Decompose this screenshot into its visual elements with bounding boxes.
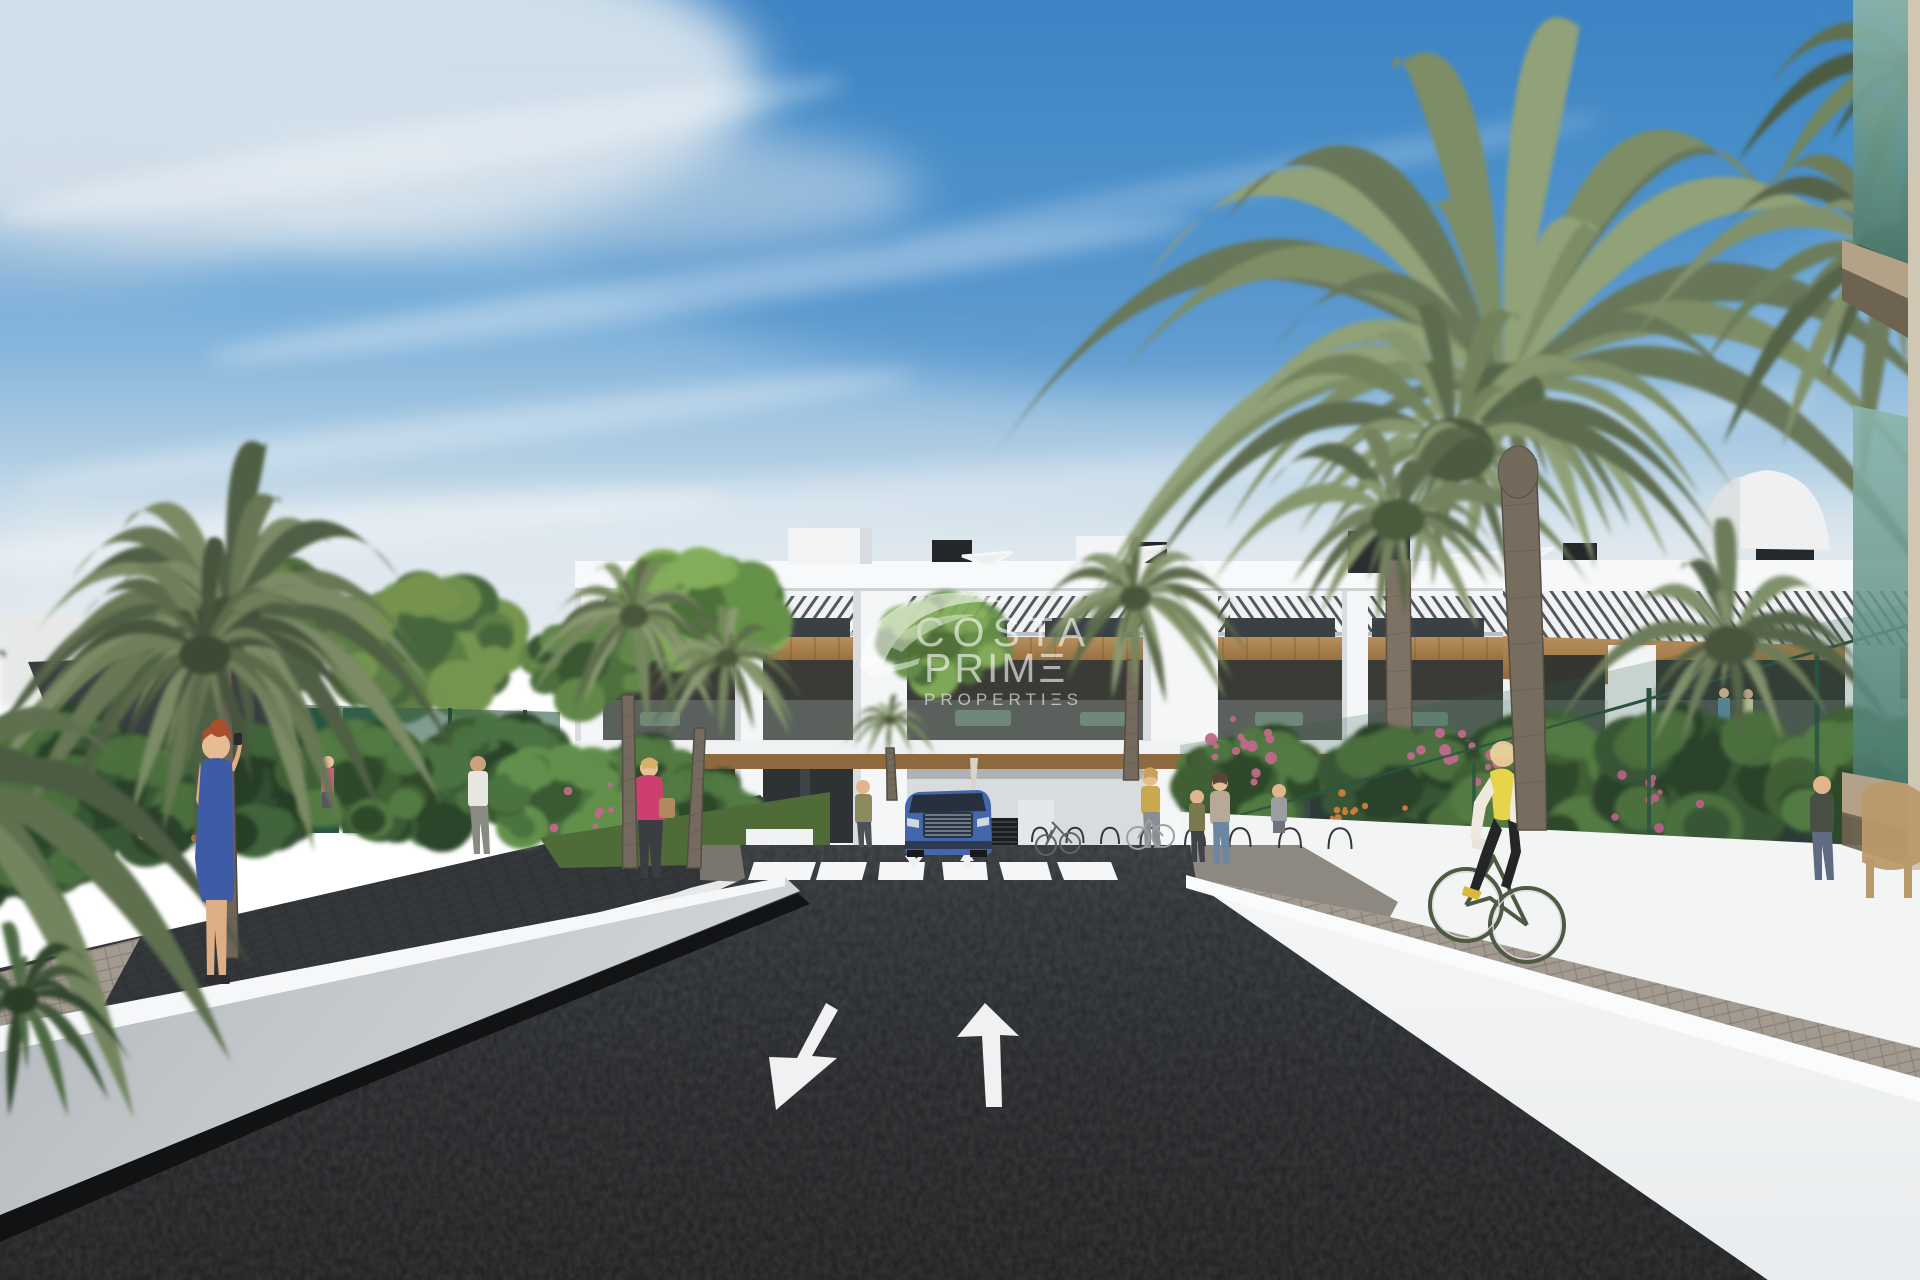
svg-text:PROPERTIΞS: PROPERTIΞS [924, 690, 1083, 709]
svg-text:PRIMΞ: PRIMΞ [924, 645, 1068, 691]
